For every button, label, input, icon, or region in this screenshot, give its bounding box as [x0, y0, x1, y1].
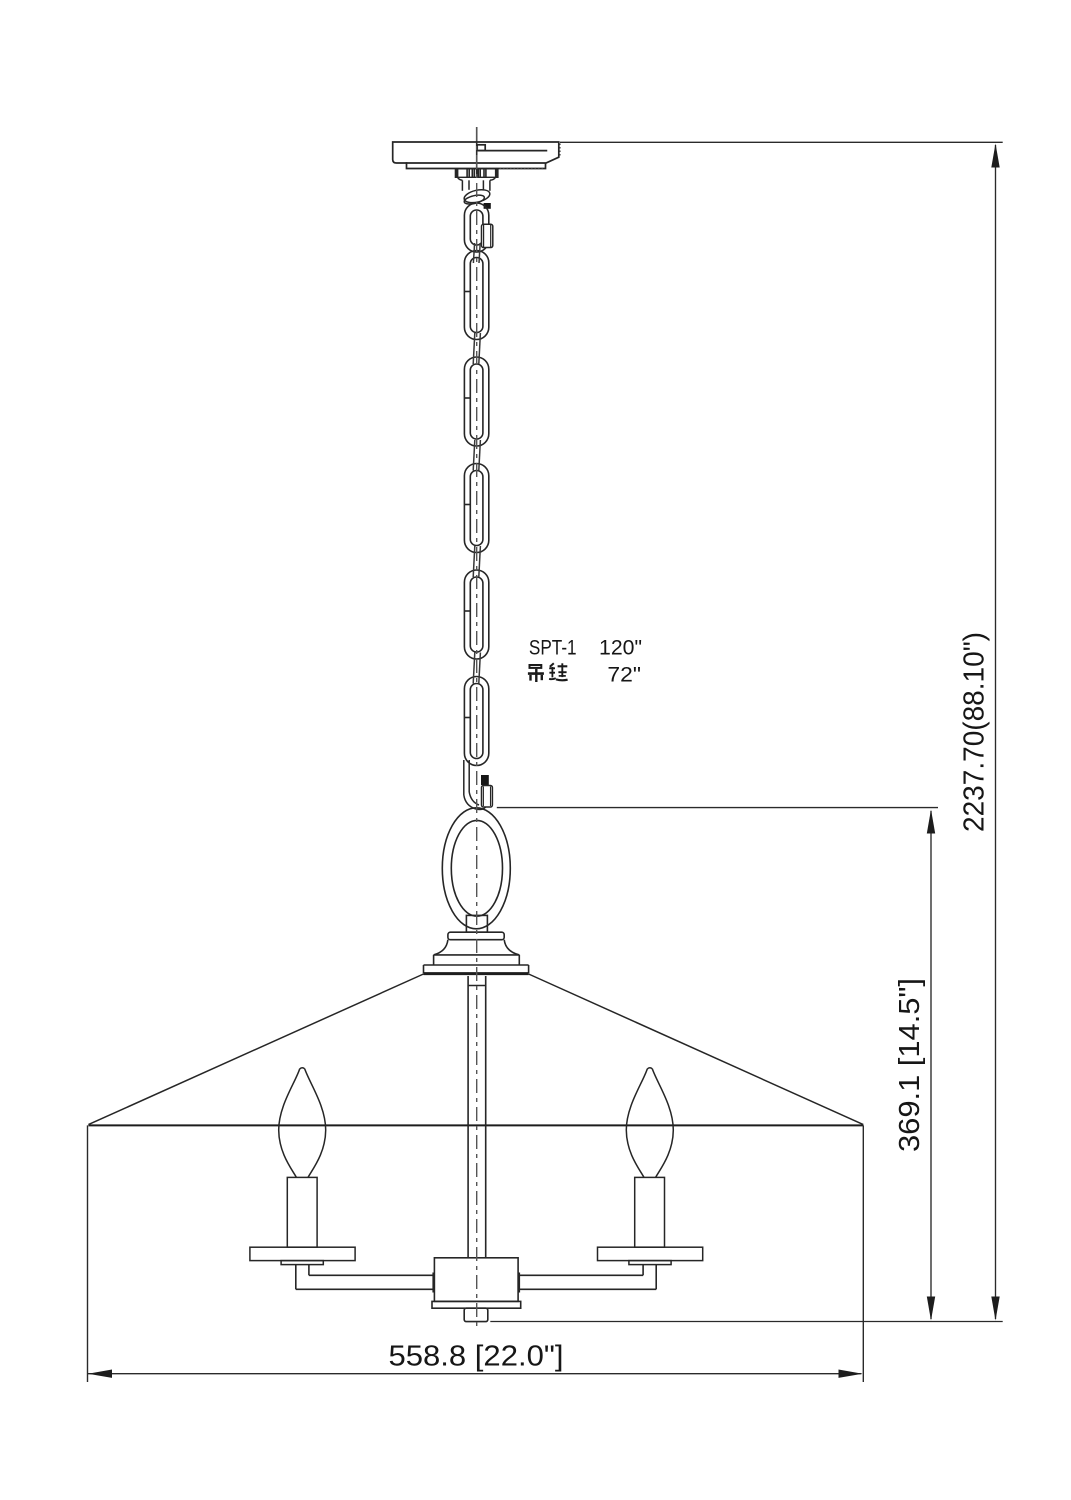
svg-text:369.1 [14.5"]: 369.1 [14.5"]	[894, 978, 926, 1152]
svg-text:558.8 [22.0"]: 558.8 [22.0"]	[389, 1340, 564, 1372]
svg-text:2237.70(88.10"): 2237.70(88.10")	[959, 632, 991, 832]
svg-text:72": 72"	[607, 663, 641, 686]
svg-text:120": 120"	[599, 636, 642, 659]
svg-text:SPT-1: SPT-1	[529, 636, 577, 659]
